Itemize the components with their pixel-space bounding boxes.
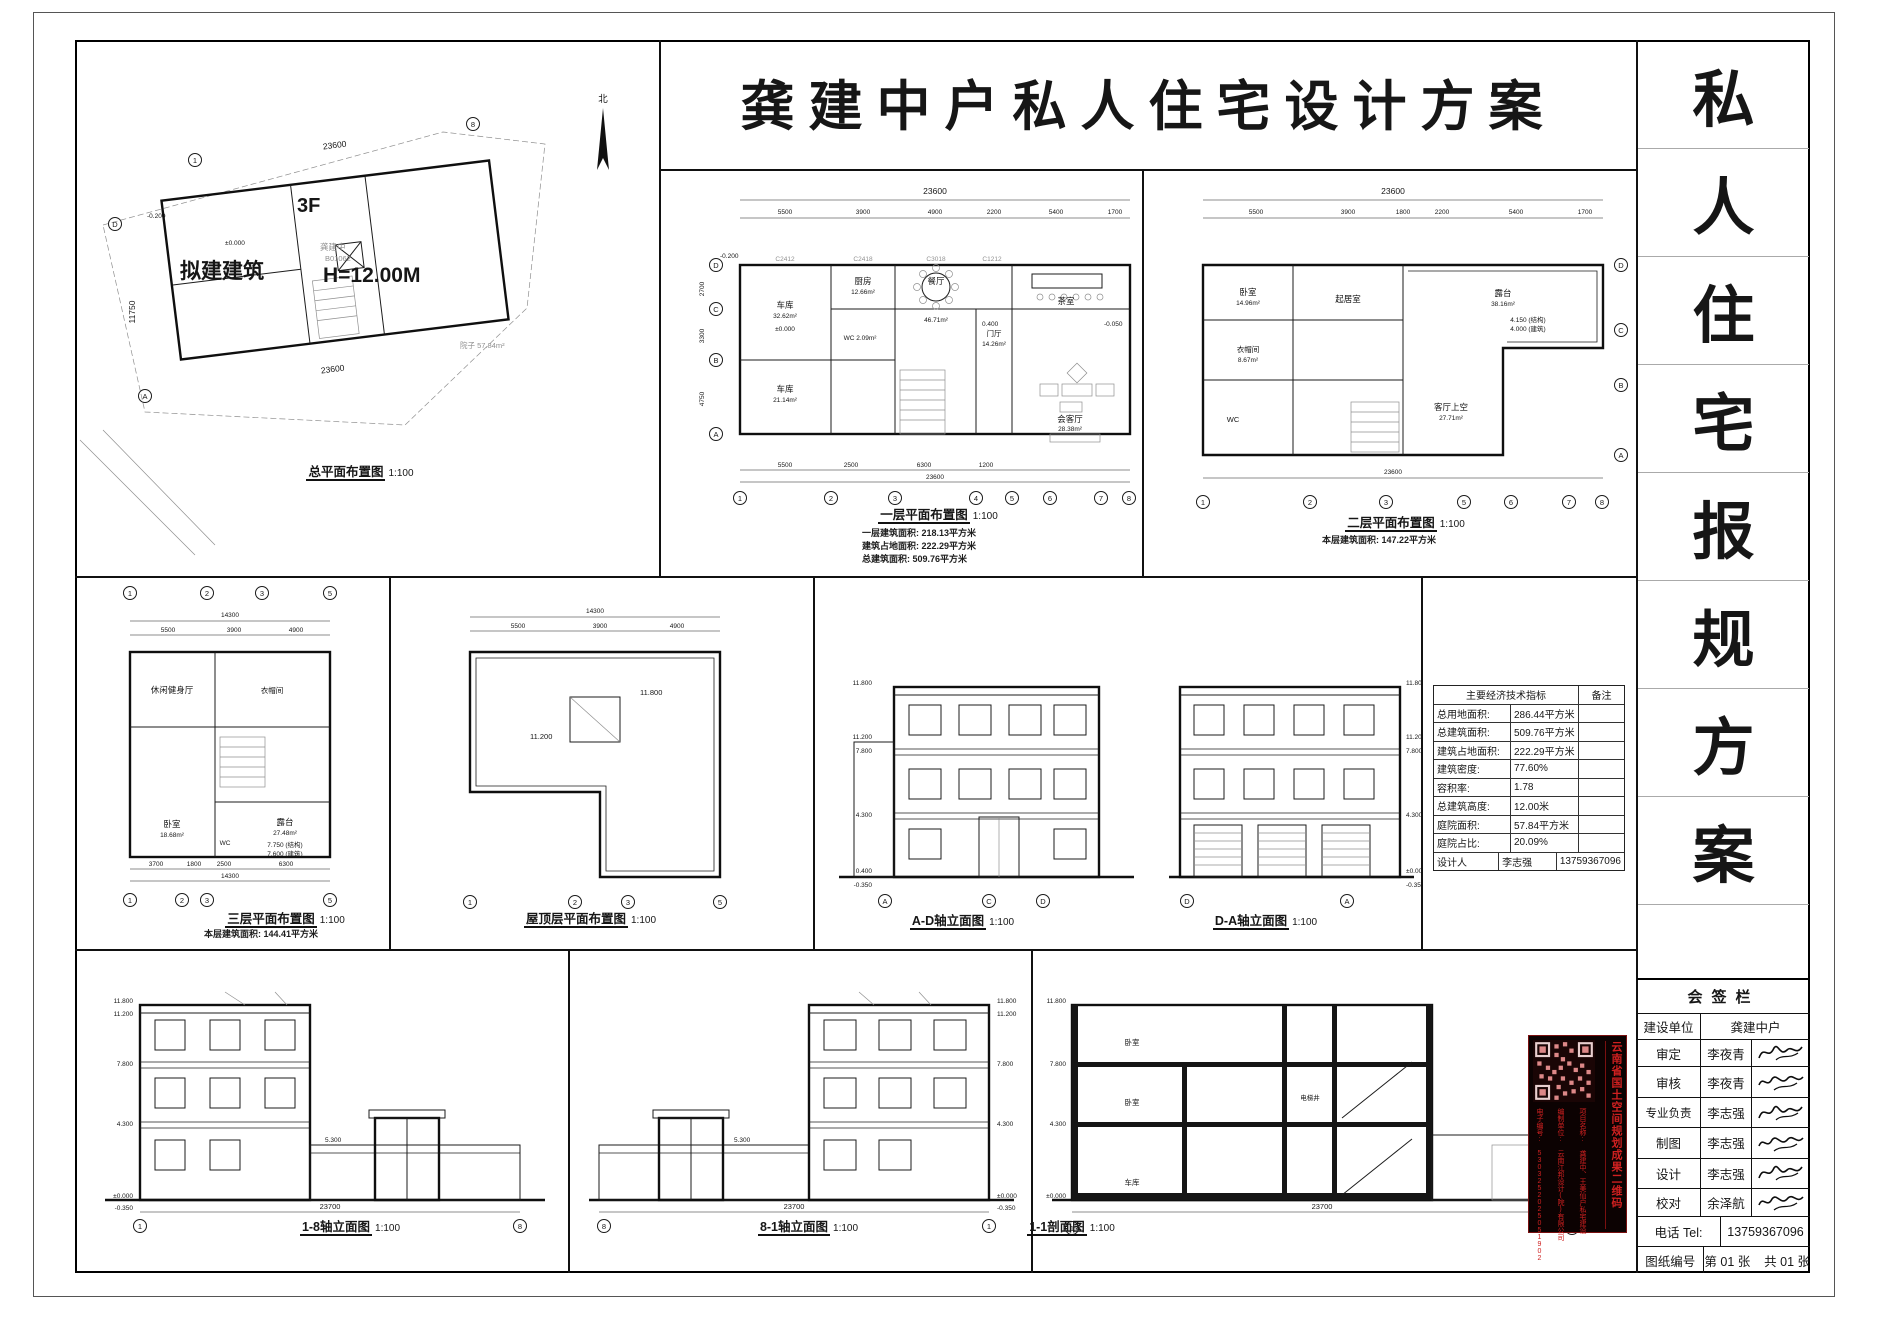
p1-dim: 2200 xyxy=(987,209,1002,216)
window-code: C2418 xyxy=(853,256,873,263)
site-floors-label: 3F xyxy=(297,195,320,217)
signature xyxy=(1752,1189,1810,1217)
site-dim-top: 23600 xyxy=(322,139,347,152)
room-label: 车库 xyxy=(1125,1177,1141,1187)
strip-divider xyxy=(1638,580,1809,581)
elev-da-axes: D A xyxy=(1181,895,1354,908)
p3-dim: 2500 xyxy=(217,861,232,868)
room-area: 12.66m² xyxy=(851,289,876,296)
svg-text:-0.350: -0.350 xyxy=(1406,882,1422,889)
svg-text:7.800: 7.800 xyxy=(1050,1061,1067,1068)
p3-dim: 1800 xyxy=(187,861,202,868)
site-dim-bottom: 23600 xyxy=(320,363,345,376)
svg-text:2: 2 xyxy=(180,896,184,905)
roof-dim: 5500 xyxy=(511,623,526,630)
room-area: 38.16m² xyxy=(1491,301,1516,308)
svg-text:4: 4 xyxy=(974,494,978,503)
window-code: C1212 xyxy=(982,256,1002,263)
p1-steps xyxy=(1050,434,1100,442)
svg-text:3: 3 xyxy=(205,896,209,905)
e18-dim: 23700 xyxy=(320,1202,341,1211)
svg-text:1: 1 xyxy=(193,156,197,165)
svg-text:11.800: 11.800 xyxy=(997,998,1017,1005)
room-area: 8.67m² xyxy=(1238,357,1259,364)
strip-divider xyxy=(1638,364,1809,365)
room-label: 茶室 xyxy=(1057,296,1075,306)
roof-outline xyxy=(470,652,720,877)
svg-text:1: 1 xyxy=(468,898,472,907)
site-owner-no: B01062 xyxy=(325,254,351,263)
economic-indicator-table: 主要经济技术指标备注 总用地面积:286.44平方米 总建筑面积:509.76平… xyxy=(1433,685,1625,871)
svg-text:2: 2 xyxy=(829,494,833,503)
svg-text:7.800: 7.800 xyxy=(856,748,873,755)
site-height-label: H=12.00M xyxy=(323,264,420,287)
qr-code xyxy=(1533,1040,1595,1102)
p2-dim: 2200 xyxy=(1435,209,1450,216)
room-label: 电梯井 xyxy=(1300,1093,1320,1102)
e18-block xyxy=(140,1005,310,1200)
svg-text:8: 8 xyxy=(518,1222,522,1231)
roof-caption: 屋顶层平面布置图1:100 xyxy=(485,908,695,927)
svg-text:C: C xyxy=(986,897,992,906)
p1-dim: 3900 xyxy=(856,209,871,216)
elev-da-windows xyxy=(1194,705,1374,799)
site-owner-label: 龚建中 xyxy=(320,242,346,252)
p3-dim: 3700 xyxy=(149,861,164,868)
p2-dim-total: 23600 xyxy=(1381,186,1405,196)
roof-bottom-axes: 1 2 3 5 xyxy=(464,896,727,909)
roof-dim: 4900 xyxy=(670,623,685,630)
level-mark: 11.800 xyxy=(640,688,662,697)
site-plan-caption: 总平面布置图1:100 xyxy=(255,461,465,480)
s11-stair xyxy=(1342,1139,1412,1195)
svg-text:A: A xyxy=(713,430,718,439)
svg-text:11.200: 11.200 xyxy=(114,1011,134,1018)
e18-levels: 11.800 11.200 7.800 4.300 ±0.000 -0.350 xyxy=(113,998,133,1212)
svg-text:8: 8 xyxy=(1127,494,1131,503)
svg-text:B: B xyxy=(1618,381,1623,390)
roof-plan-drawing: 14300 5500 3900 4900 11.800 11.200 1 2 3… xyxy=(390,577,814,950)
room-label: 厨房 xyxy=(854,276,871,286)
svg-text:4.300: 4.300 xyxy=(117,1121,134,1128)
p1-dim: 4900 xyxy=(928,209,943,216)
svg-text:B: B xyxy=(713,356,718,365)
window-code: C2412 xyxy=(775,256,795,263)
strip-char: 报 xyxy=(1637,472,1810,580)
svg-text:D: D xyxy=(112,220,118,229)
strip-char: 私 xyxy=(1637,40,1810,148)
svg-text:5: 5 xyxy=(1010,494,1014,503)
p3-dim-total: 14300 xyxy=(221,612,239,619)
strip-divider xyxy=(1638,148,1809,149)
room-label: 客厅上空 xyxy=(1434,402,1468,412)
svg-text:2700: 2700 xyxy=(699,281,706,296)
level-mark: 0.400 xyxy=(982,321,999,328)
s11-dim: 23700 xyxy=(1312,1202,1333,1211)
level-mark: 4.000 (建筑) xyxy=(1510,324,1545,333)
e18-windows xyxy=(155,1020,295,1170)
p1-dim: 1200 xyxy=(979,462,994,469)
room-area: 18.68m² xyxy=(160,832,185,839)
level-mark: ±0.000 xyxy=(775,326,795,333)
level-mark: -0.050 xyxy=(1104,321,1123,328)
s11-stair xyxy=(1342,1062,1412,1118)
econ-header: 主要经济技术指标 xyxy=(1434,686,1579,704)
strip-char: 宅 xyxy=(1637,364,1810,472)
svg-text:±0.000: ±0.000 xyxy=(997,1193,1017,1200)
svg-text:A: A xyxy=(142,392,147,401)
p1-left-axes: D C B A 2700 3300 4750 xyxy=(699,259,723,441)
svg-text:6: 6 xyxy=(1509,498,1513,507)
svg-text:1: 1 xyxy=(138,1222,142,1231)
svg-text:5: 5 xyxy=(328,896,332,905)
p3-dim: 3900 xyxy=(227,627,242,634)
p3-dim: 5500 xyxy=(161,627,176,634)
qr-serial: 电子编号: 5303252025051902 xyxy=(1534,1108,1544,1230)
room-label: WC xyxy=(1227,415,1240,424)
strip-divider xyxy=(1638,904,1809,905)
svg-text:8: 8 xyxy=(602,1222,606,1231)
plan3-note: 本层建筑面积: 144.41平方米 xyxy=(204,928,318,941)
svg-text:5: 5 xyxy=(718,898,722,907)
e81-windows xyxy=(824,1020,966,1170)
p2-dim: 3900 xyxy=(1341,209,1356,216)
svg-text:A: A xyxy=(1618,451,1623,460)
qr-project: 项目名称: 龚建中、王美仙户私宅建设 xyxy=(1577,1108,1587,1230)
svg-text:3: 3 xyxy=(260,589,264,598)
p1-dim: 5500 xyxy=(778,462,793,469)
p1-outline xyxy=(740,265,1130,434)
elev-ad-wing xyxy=(854,742,894,877)
room-label: 衣帽间 xyxy=(1237,344,1260,354)
room-area: 32.62m² xyxy=(773,313,798,320)
svg-text:4750: 4750 xyxy=(699,391,706,406)
svg-text:11.800: 11.800 xyxy=(114,998,134,1005)
p3-dim: 6300 xyxy=(279,861,294,868)
signature xyxy=(1752,1067,1810,1097)
s11-levels: 11.800 7.800 4.300 ±0.000 xyxy=(1046,998,1066,1200)
p2-dim-total-b: 23600 xyxy=(1384,469,1402,476)
site-level-zero: ±0.000 xyxy=(225,240,245,247)
roof-dim: 3900 xyxy=(593,623,608,630)
p1-dim-total-b: 23600 xyxy=(926,474,944,481)
strip-char: 人 xyxy=(1637,148,1810,256)
room-label: 卧室 xyxy=(1239,287,1257,297)
elev-da-levels: 11.800 11.200 7.800 4.300 ±0.000 -0.350 xyxy=(1406,680,1422,889)
window-code: C3018 xyxy=(926,256,946,263)
level-mark: 11.200 xyxy=(530,732,552,741)
room-label: 车库 xyxy=(776,384,794,394)
strip-char: 案 xyxy=(1637,796,1810,904)
strip-divider xyxy=(1638,256,1809,257)
site-level-neg: -0.200 xyxy=(147,213,166,220)
svg-text:4.300: 4.300 xyxy=(856,812,873,819)
svg-text:4.300: 4.300 xyxy=(1406,812,1422,819)
svg-text:D: D xyxy=(1040,897,1046,906)
p1-dim: 5400 xyxy=(1049,209,1064,216)
svg-text:11.800: 11.800 xyxy=(1406,680,1422,687)
elev-da-body xyxy=(1180,687,1400,877)
svg-text:5: 5 xyxy=(328,589,332,598)
svg-text:7.800: 7.800 xyxy=(117,1061,134,1068)
svg-text:1: 1 xyxy=(128,589,132,598)
signature xyxy=(1752,1040,1810,1067)
room-label: 卧室 xyxy=(163,819,181,829)
site-building-label: 拟建建筑 xyxy=(180,259,264,283)
svg-text:±0.000: ±0.000 xyxy=(1046,1193,1066,1200)
north-label: 北 xyxy=(598,94,608,105)
elevations-mid-drawing: 11.800 11.200 7.800 4.300 0.400 -0.350 A… xyxy=(814,577,1422,950)
level-mark: 7.600 (建筑) xyxy=(267,849,302,858)
e81-levels: 11.800 11.200 7.800 4.300 ±0.000 -0.350 xyxy=(997,998,1017,1212)
p3-dim: 4900 xyxy=(289,627,304,634)
svg-text:11.200: 11.200 xyxy=(997,1011,1017,1018)
room-label: 卧室 xyxy=(1125,1037,1141,1047)
road-line xyxy=(80,440,195,555)
svg-text:D: D xyxy=(1184,897,1190,906)
p1-stairs xyxy=(900,370,945,434)
svg-text:3: 3 xyxy=(626,898,630,907)
room-area: 14.26m² xyxy=(982,341,1007,348)
room-area: 21.14m² xyxy=(773,397,798,404)
svg-text:3: 3 xyxy=(893,494,897,503)
svg-text:11.200: 11.200 xyxy=(1406,734,1422,741)
room-label: 餐厅 xyxy=(927,276,945,286)
section-11-caption: 1-1剖面图1:100 xyxy=(971,1216,1171,1235)
svg-text:1: 1 xyxy=(738,494,742,503)
strip-divider xyxy=(1638,472,1809,473)
road-line xyxy=(103,430,215,545)
strip-divider xyxy=(1638,796,1809,797)
svg-text:1: 1 xyxy=(1201,498,1205,507)
econ-remark-header: 备注 xyxy=(1579,686,1624,704)
svg-text:D: D xyxy=(713,261,719,270)
svg-text:11.800: 11.800 xyxy=(1047,998,1067,1005)
page-title: 龚建中户私人住宅设计方案 xyxy=(660,62,1637,141)
p1-dim: 2500 xyxy=(844,462,859,469)
level-mark: -0.200 xyxy=(720,253,739,260)
svg-text:7.800: 7.800 xyxy=(1406,748,1422,755)
svg-text:2: 2 xyxy=(205,589,209,598)
svg-text:±0.000: ±0.000 xyxy=(1406,868,1422,875)
planning-qr-block: 云南省国土空间规划成果二维码 项目名称: 龚建中、王美仙户私宅建设 编制单位: … xyxy=(1528,1035,1627,1233)
p1-dining-table xyxy=(914,265,959,310)
p3-outline xyxy=(130,652,330,857)
room-label: 会客厅 xyxy=(1057,414,1083,424)
elev-18-caption: 1-8轴立面图1:100 xyxy=(250,1216,450,1235)
strip-char: 规 xyxy=(1637,580,1810,688)
svg-text:11.200: 11.200 xyxy=(853,734,873,741)
p1-dim: 1700 xyxy=(1108,209,1123,216)
level-mark: 7.750 (结构) xyxy=(267,840,302,849)
site-dim-left: 11750 xyxy=(127,300,137,323)
svg-text:3300: 3300 xyxy=(699,328,706,343)
level-mark: 5.300 xyxy=(734,1137,751,1144)
strip-divider xyxy=(1638,688,1809,689)
strip-char: 方 xyxy=(1637,688,1810,796)
signature xyxy=(1752,1159,1810,1188)
level-mark: 5.300 xyxy=(325,1137,342,1144)
elev-ad-axes: A C D xyxy=(879,895,1050,908)
room-area: 46.71m² xyxy=(924,317,949,324)
svg-text:7: 7 xyxy=(1099,494,1103,503)
room-area: 27.48m² xyxy=(273,830,298,837)
p3-stairs xyxy=(220,737,265,787)
svg-text:-0.350: -0.350 xyxy=(997,1205,1016,1212)
svg-text:11.800: 11.800 xyxy=(853,680,873,687)
p1-dim: 5500 xyxy=(778,209,793,216)
signature xyxy=(1752,1128,1810,1158)
elev-da-caption: D-A轴立面图1:100 xyxy=(1165,910,1365,929)
drawing-sheet: 龚建中户私人住宅设计方案 北 3F 拟建建筑 H=12.00M 龚建中 B010… xyxy=(0,0,1877,1328)
svg-text:1: 1 xyxy=(128,896,132,905)
plan1-notes: 一层建筑面积: 218.13平方米 建筑占地面积: 222.29平方米 总建筑面… xyxy=(862,527,976,566)
p2-dim: 5500 xyxy=(1249,209,1264,216)
svg-text:2: 2 xyxy=(1308,498,1312,507)
site-axis-circles: 1 8 D A xyxy=(109,118,480,403)
room-area: 14.96m² xyxy=(1236,300,1261,307)
sign-off-table: 会签栏 建设单位 龚建中户 审定 李夜青 审核 李夜青 专业负责 李志强 制图 … xyxy=(1637,978,1810,1273)
svg-text:A: A xyxy=(882,897,887,906)
designer-phone: 13759367096 xyxy=(1557,853,1624,871)
qr-unit: 编制单位: 云南江邦设计(院)有限公司 xyxy=(1555,1108,1565,1230)
p1-sofa xyxy=(1040,363,1114,412)
plan2-caption: 二层平面布置图1:100 xyxy=(1300,512,1510,531)
plan2-note: 本层建筑面积: 147.22平方米 xyxy=(1322,534,1436,547)
p3-bottom-axes: 1 2 3 5 xyxy=(124,894,337,907)
svg-text:±0.000: ±0.000 xyxy=(113,1193,133,1200)
p3-dim-total-b: 14300 xyxy=(221,873,239,880)
elev-81-caption: 8-1轴立面图1:100 xyxy=(708,1216,908,1235)
svg-text:2: 2 xyxy=(573,898,577,907)
svg-text:C: C xyxy=(1618,326,1624,335)
e81-dim: 23700 xyxy=(784,1202,805,1211)
svg-text:C: C xyxy=(713,305,719,314)
svg-text:0.400: 0.400 xyxy=(856,868,873,875)
site-plan-drawing: 北 3F 拟建建筑 H=12.00M 龚建中 B01062 ±0.000 -0.… xyxy=(75,40,660,577)
room-label: 卧室 xyxy=(1125,1097,1141,1107)
third-floor-plan-drawing: 1 2 3 5 14300 5500 3900 4900 休闲健身厅 衣帽间 卧… xyxy=(75,577,390,950)
svg-text:8: 8 xyxy=(471,120,475,129)
svg-text:8: 8 xyxy=(1600,498,1604,507)
room-label: 露台 xyxy=(276,817,293,827)
strip-char: 住 xyxy=(1637,256,1810,364)
room-label: 露台 xyxy=(1494,288,1511,298)
site-yard-label: 院子 57.84m² xyxy=(460,340,505,350)
sign-title: 会签栏 xyxy=(1637,980,1810,1013)
north-arrow-icon xyxy=(597,108,609,170)
svg-text:6: 6 xyxy=(1048,494,1052,503)
p1-dim: 6300 xyxy=(917,462,932,469)
e81-block xyxy=(809,1005,989,1200)
p2-stairs xyxy=(1351,402,1399,452)
elev-ad-body xyxy=(894,687,1099,877)
p2-bottom-axes: 1 2 3 5 6 7 8 xyxy=(1197,496,1609,509)
roof-dim-total: 14300 xyxy=(586,608,604,615)
level-mark: 4.150 (结构) xyxy=(1510,315,1545,324)
room-label: 休闲健身厅 xyxy=(151,685,194,695)
p3-top-axes: 1 2 3 5 xyxy=(124,587,337,600)
p1-dim-total: 23600 xyxy=(923,186,947,196)
svg-text:5: 5 xyxy=(1462,498,1466,507)
p2-dim: 5400 xyxy=(1509,209,1524,216)
p2-dim: 1700 xyxy=(1578,209,1593,216)
p1-bottom-axes: 1 2 3 4 5 6 7 8 xyxy=(734,492,1136,505)
signature xyxy=(1752,1098,1810,1127)
svg-text:3: 3 xyxy=(1384,498,1388,507)
svg-text:7: 7 xyxy=(1567,498,1571,507)
svg-text:-0.350: -0.350 xyxy=(854,882,873,889)
room-area: 27.71m² xyxy=(1439,415,1464,422)
room-label: WC 2.09m² xyxy=(844,335,878,342)
elev-ad-levels: 11.800 11.200 7.800 4.300 0.400 -0.350 xyxy=(853,680,873,889)
room-label: 起居室 xyxy=(1335,294,1361,304)
room-area: 28.38m² xyxy=(1058,426,1083,433)
elev-ad-windows xyxy=(909,705,1086,877)
elev-ad-caption: A-D轴立面图1:100 xyxy=(862,910,1062,929)
svg-text:7.800: 7.800 xyxy=(997,1061,1014,1068)
room-label: WC xyxy=(220,840,231,847)
qr-title: 云南省国土空间规划成果二维码 xyxy=(1605,1041,1624,1229)
svg-text:4.300: 4.300 xyxy=(997,1121,1014,1128)
p2-dim: 1800 xyxy=(1396,209,1411,216)
svg-text:4.300: 4.300 xyxy=(1050,1121,1067,1128)
svg-text:-0.350: -0.350 xyxy=(115,1205,134,1212)
roof-parapet xyxy=(476,658,714,871)
room-label: 衣帽间 xyxy=(261,685,284,695)
plan3-caption: 三层平面布置图1:100 xyxy=(180,908,390,927)
svg-text:D: D xyxy=(1618,261,1624,270)
elev-da-garage-doors xyxy=(1194,825,1370,877)
plan1-caption: 一层平面布置图1:100 xyxy=(838,504,1038,523)
room-label: 车库 xyxy=(776,300,794,310)
svg-text:A: A xyxy=(1344,897,1349,906)
p2-right-axes: D C B A xyxy=(1615,259,1628,462)
room-label: 门厅 xyxy=(987,329,1002,338)
